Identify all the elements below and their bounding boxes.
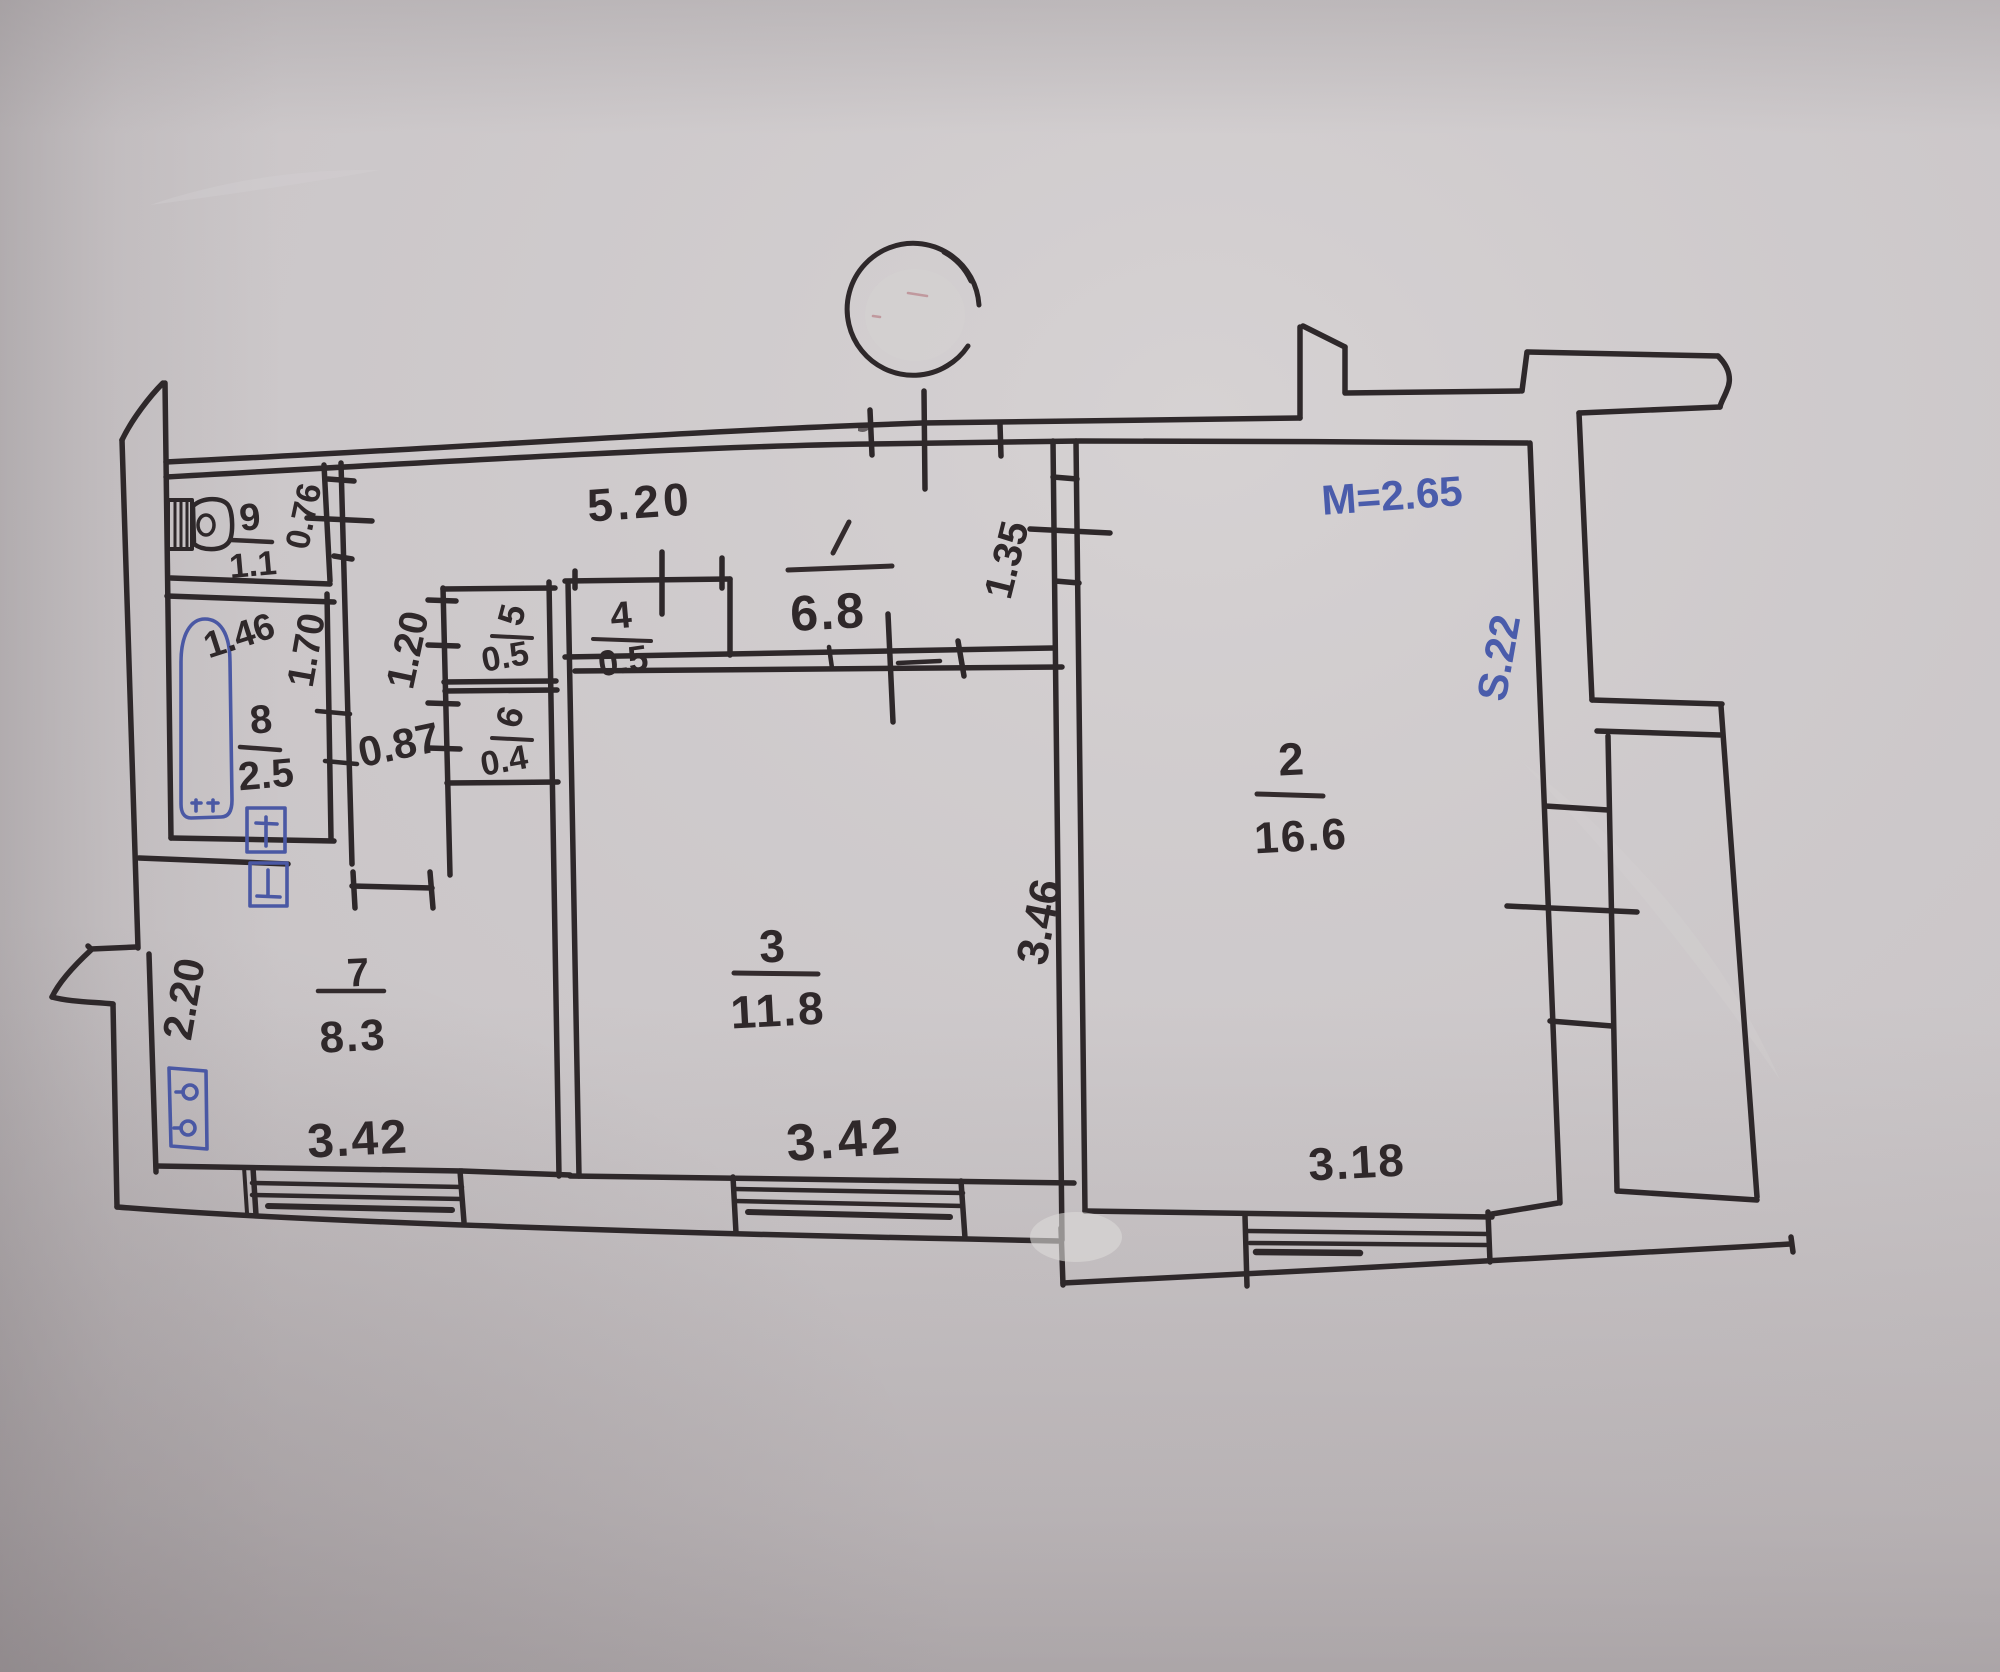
svg-text:8.3: 8.3: [318, 1010, 388, 1062]
svg-text:4: 4: [609, 594, 634, 638]
svg-text:9: 9: [238, 496, 263, 540]
svg-text:0.5: 0.5: [479, 634, 532, 680]
svg-text:1.1: 1.1: [228, 544, 278, 586]
svg-text:2: 2: [1277, 732, 1305, 785]
svg-text:16.6: 16.6: [1253, 810, 1349, 864]
svg-text:2.5: 2.5: [236, 751, 295, 800]
svg-text:M=2.65: M=2.65: [1320, 467, 1464, 524]
svg-text:5.20: 5.20: [585, 472, 694, 531]
svg-text:8: 8: [248, 697, 274, 743]
svg-text:6.8: 6.8: [789, 582, 867, 642]
svg-text:0.4: 0.4: [478, 738, 531, 784]
svg-text:11.8: 11.8: [729, 982, 827, 1039]
svg-text:3.42: 3.42: [784, 1107, 905, 1173]
svg-text:3.18: 3.18: [1307, 1133, 1407, 1190]
svg-text:0.5: 0.5: [595, 637, 650, 685]
svg-text:3.42: 3.42: [306, 1110, 410, 1168]
svg-text:3: 3: [758, 919, 786, 972]
